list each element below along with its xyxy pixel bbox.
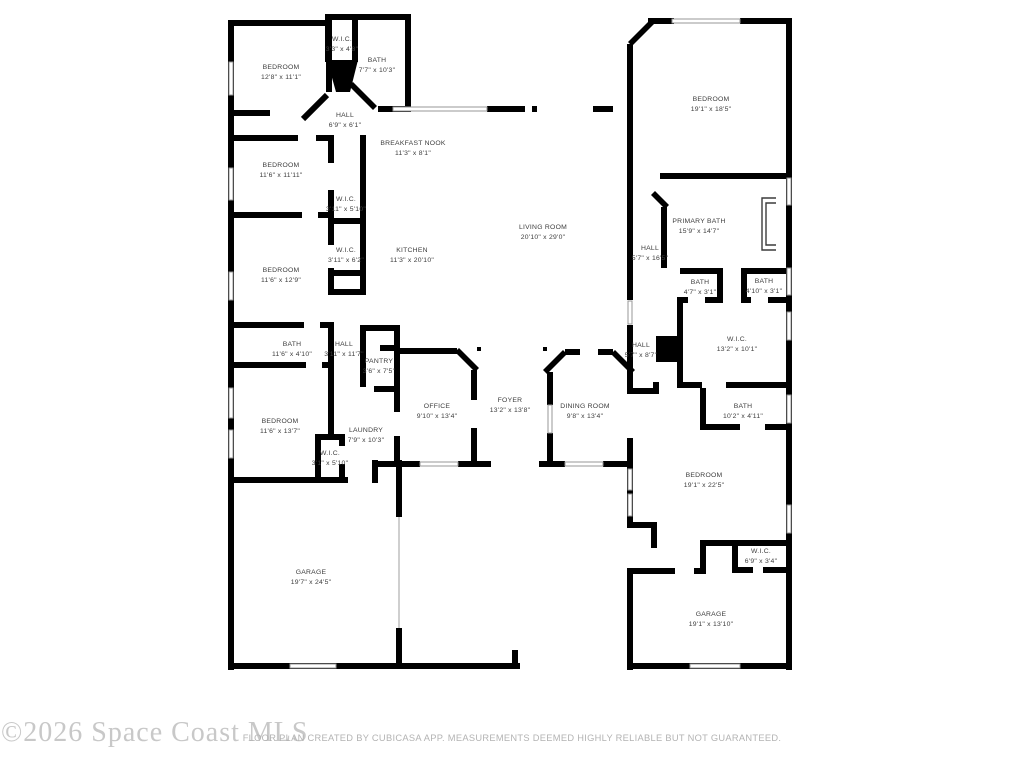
room-label: BREAKFAST NOOK11'3" x 8'1" [380, 139, 445, 159]
room-label: BEDROOM11'6" x 13'7" [260, 417, 300, 437]
room-label: BEDROOM11'6" x 11'11" [259, 161, 302, 181]
room-label: HALL5'7" x 8'7" [625, 341, 657, 361]
room-label: BEDROOM12'8" x 11'1" [261, 63, 301, 83]
room-label: W.I.C.3'3" x 4'8" [326, 35, 358, 55]
room-label: BEDROOM19'1" x 22'5" [684, 471, 725, 491]
room-label: BEDROOM11'6" x 12'9" [261, 266, 301, 286]
room-label: GARAGE19'1" x 13'10" [689, 610, 734, 630]
room-label: W.I.C.13'2" x 10'1" [717, 335, 758, 355]
room-label: OFFICE9'10" x 13'4" [417, 402, 458, 422]
room-label: GARAGE19'7" x 24'5" [291, 568, 332, 588]
room-label: BEDROOM19'1" x 18'5" [691, 95, 732, 115]
room-label: PRIMARY BATH15'9" x 14'7" [672, 217, 725, 237]
room-label: LIVING ROOM20'10" x 29'0" [519, 223, 567, 243]
room-label: W.I.C.3'11" x 5'10" [326, 195, 366, 215]
room-label: BATH4'10" x 3'1" [746, 277, 783, 297]
room-label: W.I.C.3'1" x 5'10" [312, 449, 349, 469]
room-label: DINING ROOM9'8" x 13'4" [560, 402, 610, 422]
room-label: W.I.C.6'9" x 3'4" [745, 547, 777, 567]
room-label: HALL6'9" x 6'1" [329, 111, 361, 131]
room-label: HALL5'7" x 16'5" [632, 244, 669, 264]
room-label: BATH4'7" x 3'1" [684, 278, 716, 298]
room-label: FOYER13'2" x 13'8" [490, 396, 531, 416]
room-label: BATH7'7" x 10'3" [359, 56, 396, 76]
room-label: PANTRY3'6" x 7'5" [363, 357, 395, 377]
room-label: BATH10'2" x 4'11" [723, 402, 763, 422]
floorplan-page: BEDROOM12'8" x 11'1"W.I.C.3'3" x 4'8"BAT… [0, 0, 1024, 768]
floorplan-drawing [0, 0, 1024, 768]
footer-disclaimer: FLOOR PLAN CREATED BY CUBICASA APP. MEAS… [0, 733, 1024, 743]
shower-fixture [762, 198, 776, 250]
room-label: LAUNDRY7'9" x 10'3" [348, 426, 385, 446]
room-label: HALL3'11" x 11'7" [324, 340, 364, 360]
room-label: W.I.C.3'11" x 6'2" [328, 246, 364, 266]
room-label: KITCHEN11'3" x 20'10" [390, 246, 434, 266]
room-label: BATH11'6" x 4'10" [272, 340, 312, 360]
